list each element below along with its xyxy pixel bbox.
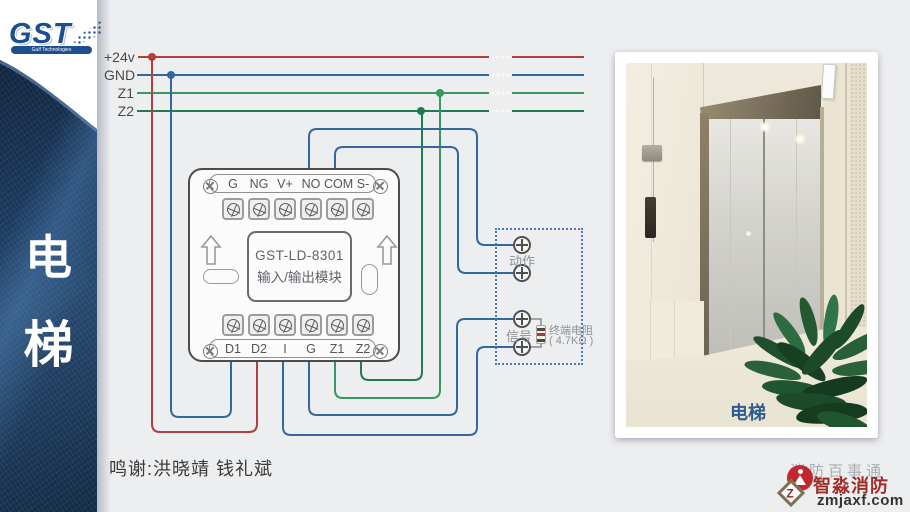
terminal-label-g: G [220,177,246,191]
terminal-label-d1: D1 [220,342,246,356]
sidebar-title-char-2: 梯 [0,305,97,377]
terminal-label-no: NO [298,177,324,191]
elevator-photo: 电梯 [626,63,867,427]
watermark-site: zmjaxf.com [817,492,904,509]
mounting-screw-icon [373,179,388,194]
junction-dots [148,53,444,115]
screw-terminal-icon [222,314,244,336]
screw-terminal-icon [352,314,374,336]
module-nameplate: GST-LD-8301 输入/输出模块 [247,231,352,302]
credits-text: 鸣谢:洪晓靖 钱礼斌 [109,455,273,481]
up-arrow-icon [200,234,222,266]
module-subtitle: 输入/输出模块 [257,266,342,286]
screw-terminal-icon [222,198,244,220]
signal-label: 信号 [506,326,532,345]
screw-terminal-icon [352,198,374,220]
slide-canvas: +24v GND Z1 Z2 G NG V+ NO COM S- D1 D2 I… [0,0,910,512]
ceiling-light [794,133,806,145]
module-slot-vertical [361,264,378,295]
terminal-label-com: COM [324,177,350,191]
floor-indicator [642,145,662,161]
elevator-photo-card: 电梯 [615,52,878,438]
mounting-screw-icon [203,179,218,194]
photo-caption: 电梯 [718,399,778,425]
terminal-label-sminus: S- [350,177,376,191]
terminal-resistor-icon [536,325,546,344]
mounting-screw-icon [203,344,218,359]
screw-terminal-icon [248,198,270,220]
resistor-label-2: ( 4.7KΩ ) [549,335,593,347]
terminal-label-z1: Z1 [324,342,350,356]
terminal-label-z2: Z2 [350,342,376,356]
module-slot-horizontal [203,269,239,284]
action-label: 动作 [509,251,535,270]
sidebar-title-char-1: 电 [0,219,97,288]
screw-terminal-icon [326,198,348,220]
terminal-label-g2: G [298,342,324,356]
gst-logo-tagline: Gulf Technologies [11,46,92,54]
screw-terminal-icon [274,198,296,220]
gst-logo-globe-dots-icon [72,20,102,45]
mounting-screw-icon [373,344,388,359]
wall-light-fixture [821,64,836,100]
terminal-label-vplus: V+ [272,177,298,191]
terminal-label-ng: NG [246,177,272,191]
gst-logo: GST Gulf Technologies [9,20,109,56]
screw-terminal-icon [300,198,322,220]
module-gst-ld-8301: G NG V+ NO COM S- D1 D2 I G Z1 Z2 GST-LD… [188,168,400,362]
screw-terminal-icon [326,314,348,336]
elevator-doors [708,119,820,367]
bus-gap-dots [491,55,509,112]
sidebar-shadow [97,0,111,512]
up-arrow-icon [376,234,398,266]
module-model: GST-LD-8301 [255,248,344,263]
terminal-label-d2: D2 [246,342,272,356]
screw-terminal-icon [300,314,322,336]
screw-terminal-icon [248,314,270,336]
call-button-panel [645,197,656,238]
screw-terminal-icon [274,314,296,336]
terminal-label-i: I [272,342,298,356]
ceiling-light [759,121,771,133]
